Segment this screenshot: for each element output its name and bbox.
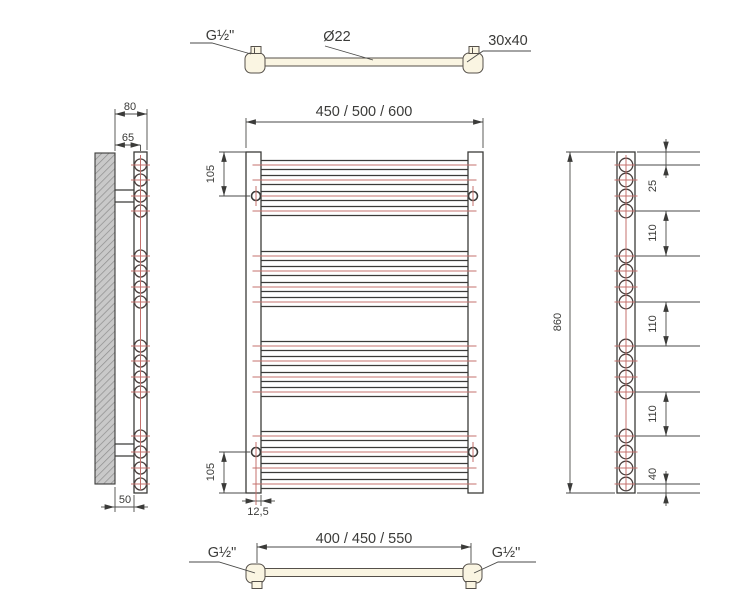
top-view-tube	[264, 58, 464, 66]
total-height-dimension: 860	[552, 313, 564, 331]
front-tube-centerlines	[253, 165, 477, 484]
depth-outer-dimension: 80	[124, 101, 136, 113]
top-view-left-fitting	[245, 53, 265, 73]
leader-g-half-bottom-right	[474, 562, 536, 573]
bottom-view-left-fitting	[246, 564, 265, 583]
front-tubes	[261, 161, 468, 489]
bottom-hole-offset-dimension: 105	[205, 463, 217, 481]
depth-inner-dimension: 50	[119, 494, 131, 506]
group-gap-dimension-3: 110	[647, 405, 659, 423]
leader-g-half-bottom-left	[189, 562, 255, 573]
connection-spacing-dimension: 400 / 450 / 550	[316, 531, 413, 547]
left-side-view: 80 65 50	[95, 101, 150, 512]
profile-size-label: 30x40	[488, 33, 528, 49]
top-view-right-nipple	[469, 47, 479, 54]
top-hole-offset-dimension: 105	[205, 165, 217, 183]
top-view-right-fitting	[463, 53, 483, 73]
bottom-view: 400 / 450 / 550 G½" G½"	[189, 531, 536, 589]
front-view: 450 / 500 / 600 105 105 12,5	[205, 104, 483, 518]
bottom-left-connection-label: G½"	[208, 545, 237, 561]
bottom-view-right-fitting	[463, 564, 482, 583]
bottom-tube-offset-dimension: 40	[647, 468, 659, 480]
bottom-view-tube	[264, 569, 464, 577]
tube-diameter-label: Ø22	[323, 29, 350, 45]
radiator-drawing: G½" Ø22 30x40 450 / 500 / 600 105 105	[0, 0, 756, 600]
top-tube-offset-dimension: 25	[647, 180, 659, 192]
group-gap-dimension-2: 110	[647, 315, 659, 333]
front-width-dimension: 450 / 500 / 600	[316, 104, 413, 120]
bottom-view-right-nipple	[466, 582, 476, 589]
right-side-view: 860 25 110 110 110 40	[552, 139, 700, 506]
front-left-rail	[246, 152, 261, 493]
leader-g-half-top-left	[190, 43, 251, 54]
group-gap-dimension-1: 110	[647, 224, 659, 242]
top-view: G½" Ø22 30x40	[190, 28, 531, 73]
top-view-left-nipple	[251, 47, 261, 54]
top-left-connection-label: G½"	[206, 28, 235, 44]
wall-section	[95, 153, 115, 484]
depth-center-dimension: 65	[122, 132, 134, 144]
bottom-view-left-nipple	[252, 582, 262, 589]
bottom-right-connection-label: G½"	[492, 545, 521, 561]
hole-inset-dimension: 12,5	[247, 506, 268, 518]
front-right-rail	[468, 152, 483, 493]
right-view-extension-lines	[635, 165, 700, 484]
technical-drawing-canvas: G½" Ø22 30x40 450 / 500 / 600 105 105	[0, 0, 756, 600]
